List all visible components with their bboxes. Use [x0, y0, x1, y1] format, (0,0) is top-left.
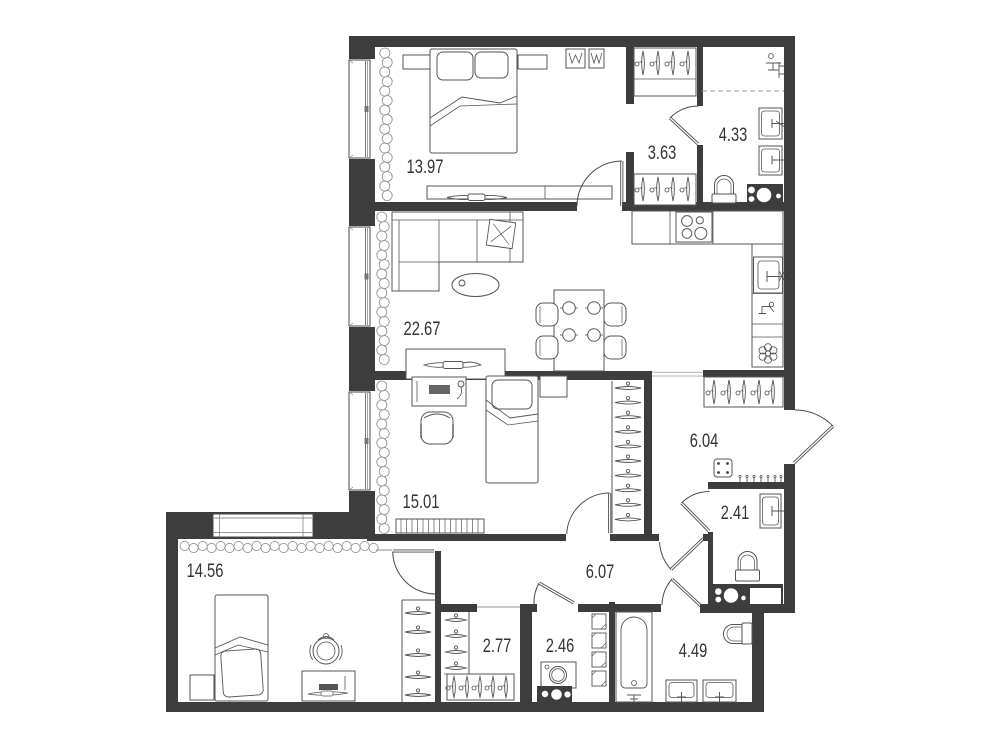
svg-text:2.77: 2.77: [483, 636, 512, 657]
svg-text:15.01: 15.01: [403, 492, 440, 513]
svg-text:3.63: 3.63: [648, 143, 677, 164]
svg-text:2.46: 2.46: [546, 636, 575, 657]
svg-text:4.33: 4.33: [719, 125, 748, 146]
svg-text:4.49: 4.49: [679, 641, 708, 662]
svg-text:13.97: 13.97: [407, 157, 444, 178]
svg-text:22.67: 22.67: [404, 319, 441, 340]
svg-text:6.04: 6.04: [690, 431, 719, 452]
svg-text:2.41: 2.41: [721, 503, 750, 524]
svg-text:14.56: 14.56: [187, 561, 224, 582]
svg-text:6.07: 6.07: [586, 562, 615, 583]
